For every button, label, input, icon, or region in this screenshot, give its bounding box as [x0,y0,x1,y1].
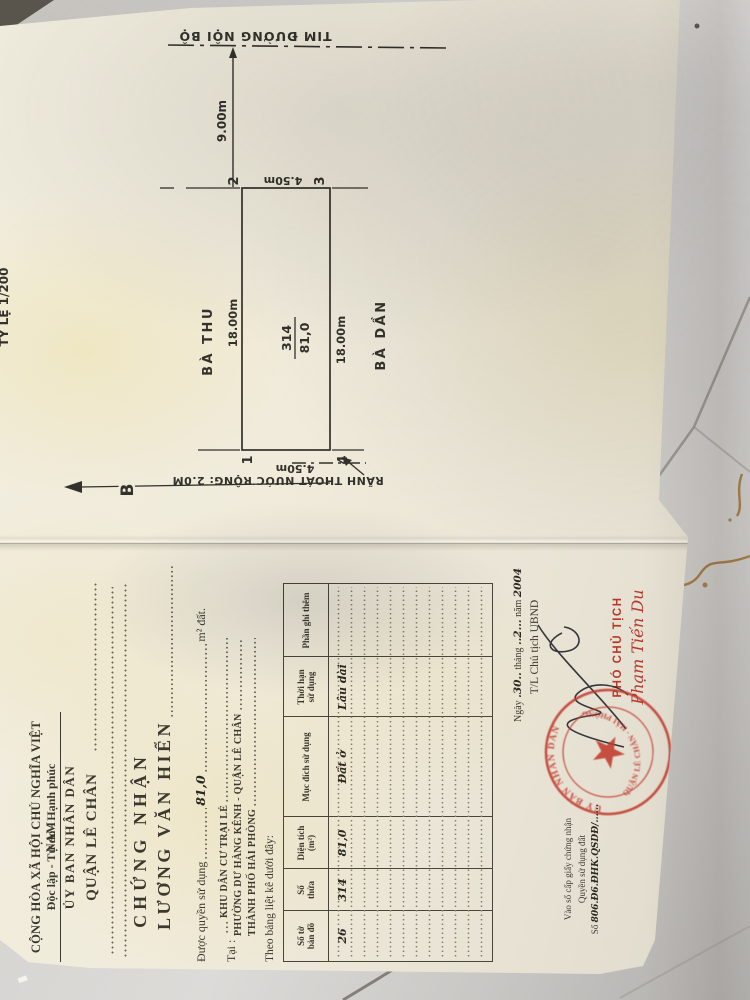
grant-prefix: Được quyền sử dụng [194,862,209,962]
table-dotted-fill [332,587,490,958]
registry-block: Vào sổ cấp giấy chứng nhận Quyền sử dụng… [562,794,604,944]
dim-left: 4.50m [276,462,315,475]
white-speck [18,975,28,983]
cell-purpose: Đất ở [336,717,354,817]
table-header: Số tờ bản đồ [284,911,328,961]
neighbor-top: BÀ THU [200,306,216,376]
land-parcel-table: Số tờ bản đồ Số thửa Diện tích (m²) Mục … [283,583,493,962]
table-intro: Theo bảng liệt kê dưới đây: [264,835,276,962]
cell-map-sheet: 26 [336,911,354,961]
date-year: 2004 [512,568,524,597]
dotted-leader [165,566,174,718]
stamp-arc-bottom: QUẬN LÊ CHÂN ∙ HẢI PHÒNG [578,693,660,799]
north-label: B [118,484,138,497]
issuer-name: QUẬN LÊ CHÂN [84,712,101,962]
dotted-leader [199,808,208,860]
neighbor-bottom: BÀ DẦN [371,299,389,370]
cell-duration: Lâu dài [336,657,354,717]
registry-line1: Vào sổ cấp giấy chứng nhận [562,794,576,944]
document-rotated: CỘNG HÒA XÃ HỘI CHỦ NGHĨA VIỆT NAM Độc l… [0,0,690,1000]
table-header: Mục đích sử dụng [284,717,328,817]
registry-no-value: 806.Đ6.ĐHK.QSDĐ/...... [591,804,601,923]
grantee-name: LƯƠNG VĂN HIỂN [154,720,175,930]
table-header: Diện tích (m²) [284,817,328,869]
north-arrowhead-icon [64,481,82,493]
ditch-label: RÃNH THOÁT NƯỚC RỘNG: 2.0M [172,474,384,487]
corner-1: 1 [241,455,256,464]
table-data-row: 26 314 81,0 Đất ở Lâu dài [336,584,354,961]
certify-title: CHỨNG NHẬN [130,718,151,962]
cell-area: 81,0 [336,817,354,869]
floor-speck [695,24,700,29]
date-day: .30.. [512,672,524,698]
table-header-row: Số tờ bản đồ Số thửa Diện tích (m²) Mục … [284,584,329,961]
parcel-area: 81,0 [297,322,312,353]
dotted-leader [234,638,243,711]
corner-2: 2 [227,176,242,185]
cell-parcel-no: 314 [336,869,354,911]
table-header: Thời hạn sử dụng [284,657,328,717]
svg-text:QUẬN LÊ CHÂN ∙ HẢI PHÒNG: QUẬN LÊ CHÂN ∙ HẢI PHÒNG [578,693,660,799]
certificate-page: CỘNG HÒA XÃ HỘI CHỦ NGHĨA VIỆT NAM Độc l… [0,545,690,1000]
plot-rectangle [242,188,330,450]
road-centerline [168,45,446,48]
grant-unit: m² đất. [194,608,209,642]
table-header: Số thửa [284,869,328,911]
parcel-number: 314 [279,325,294,351]
cell-notes [336,584,354,657]
dotted-leader [248,638,257,807]
road-label: TIM ĐƯỜNG NỘI BỘ [178,29,331,44]
at-line1: KHU DÂN CƯ TRẠI LẺ [219,805,230,918]
grout-line [656,297,750,480]
at-line2: PHƯỜNG DƯ HÀNG KÊNH - QUẬN LÊ CHÂN [233,713,244,936]
date-month: ..2... [512,619,524,645]
date-word-month: tháng [513,648,524,670]
grout-line [694,427,750,472]
grant-area-value: 81,0 [193,775,208,805]
at-label: Tại : [224,940,239,962]
table-header: Phần ghi thêm [284,584,328,657]
dotted-leader [199,644,208,774]
dotted-rule [111,587,114,955]
dim-bottom: 18.00m [334,316,348,364]
national-motto-line2: Độc lập - Tự do - Hạnh phúc [44,712,61,962]
plot-diagram-page: TỶ LỆ 1/200 TIM ĐƯỜNG NỘI BỘ 9.00m 1 2 3… [0,0,690,545]
date-word-day: Ngày [513,700,524,722]
dotted-leader [220,920,229,934]
registry-no-label: Số [590,925,600,935]
at-line3: THÀNH PHỐ HẢI PHÒNG [247,809,258,936]
dotted-leader [94,582,97,752]
registry-line2: Quyền sử dụng đất [576,794,590,944]
dotted-leader [220,638,229,803]
paper-fold-line [0,543,710,544]
road-distance-label: 9.00m [215,100,229,142]
date-word-year: năm [513,600,524,617]
certificate-paper: CỘNG HÒA XÃ HỘI CHỦ NGHĨA VIỆT NAM Độc l… [0,0,750,1000]
dotted-rule [124,584,127,958]
dim-top: 18.00m [226,299,240,347]
dim-right: 4.50m [264,174,303,187]
issuer-label: ỦY BAN NHÂN DÂN [62,712,78,962]
scale-note: TỶ LỆ 1/200 [0,268,11,347]
corner-3: 3 [313,176,328,185]
arrowhead-icon [229,47,237,58]
stamp-star-icon [585,731,627,774]
photo-of-land-certificate: CỘNG HÒA XÃ HỘI CHỦ NGHĨA VIỆT NAM Độc l… [0,0,750,1000]
